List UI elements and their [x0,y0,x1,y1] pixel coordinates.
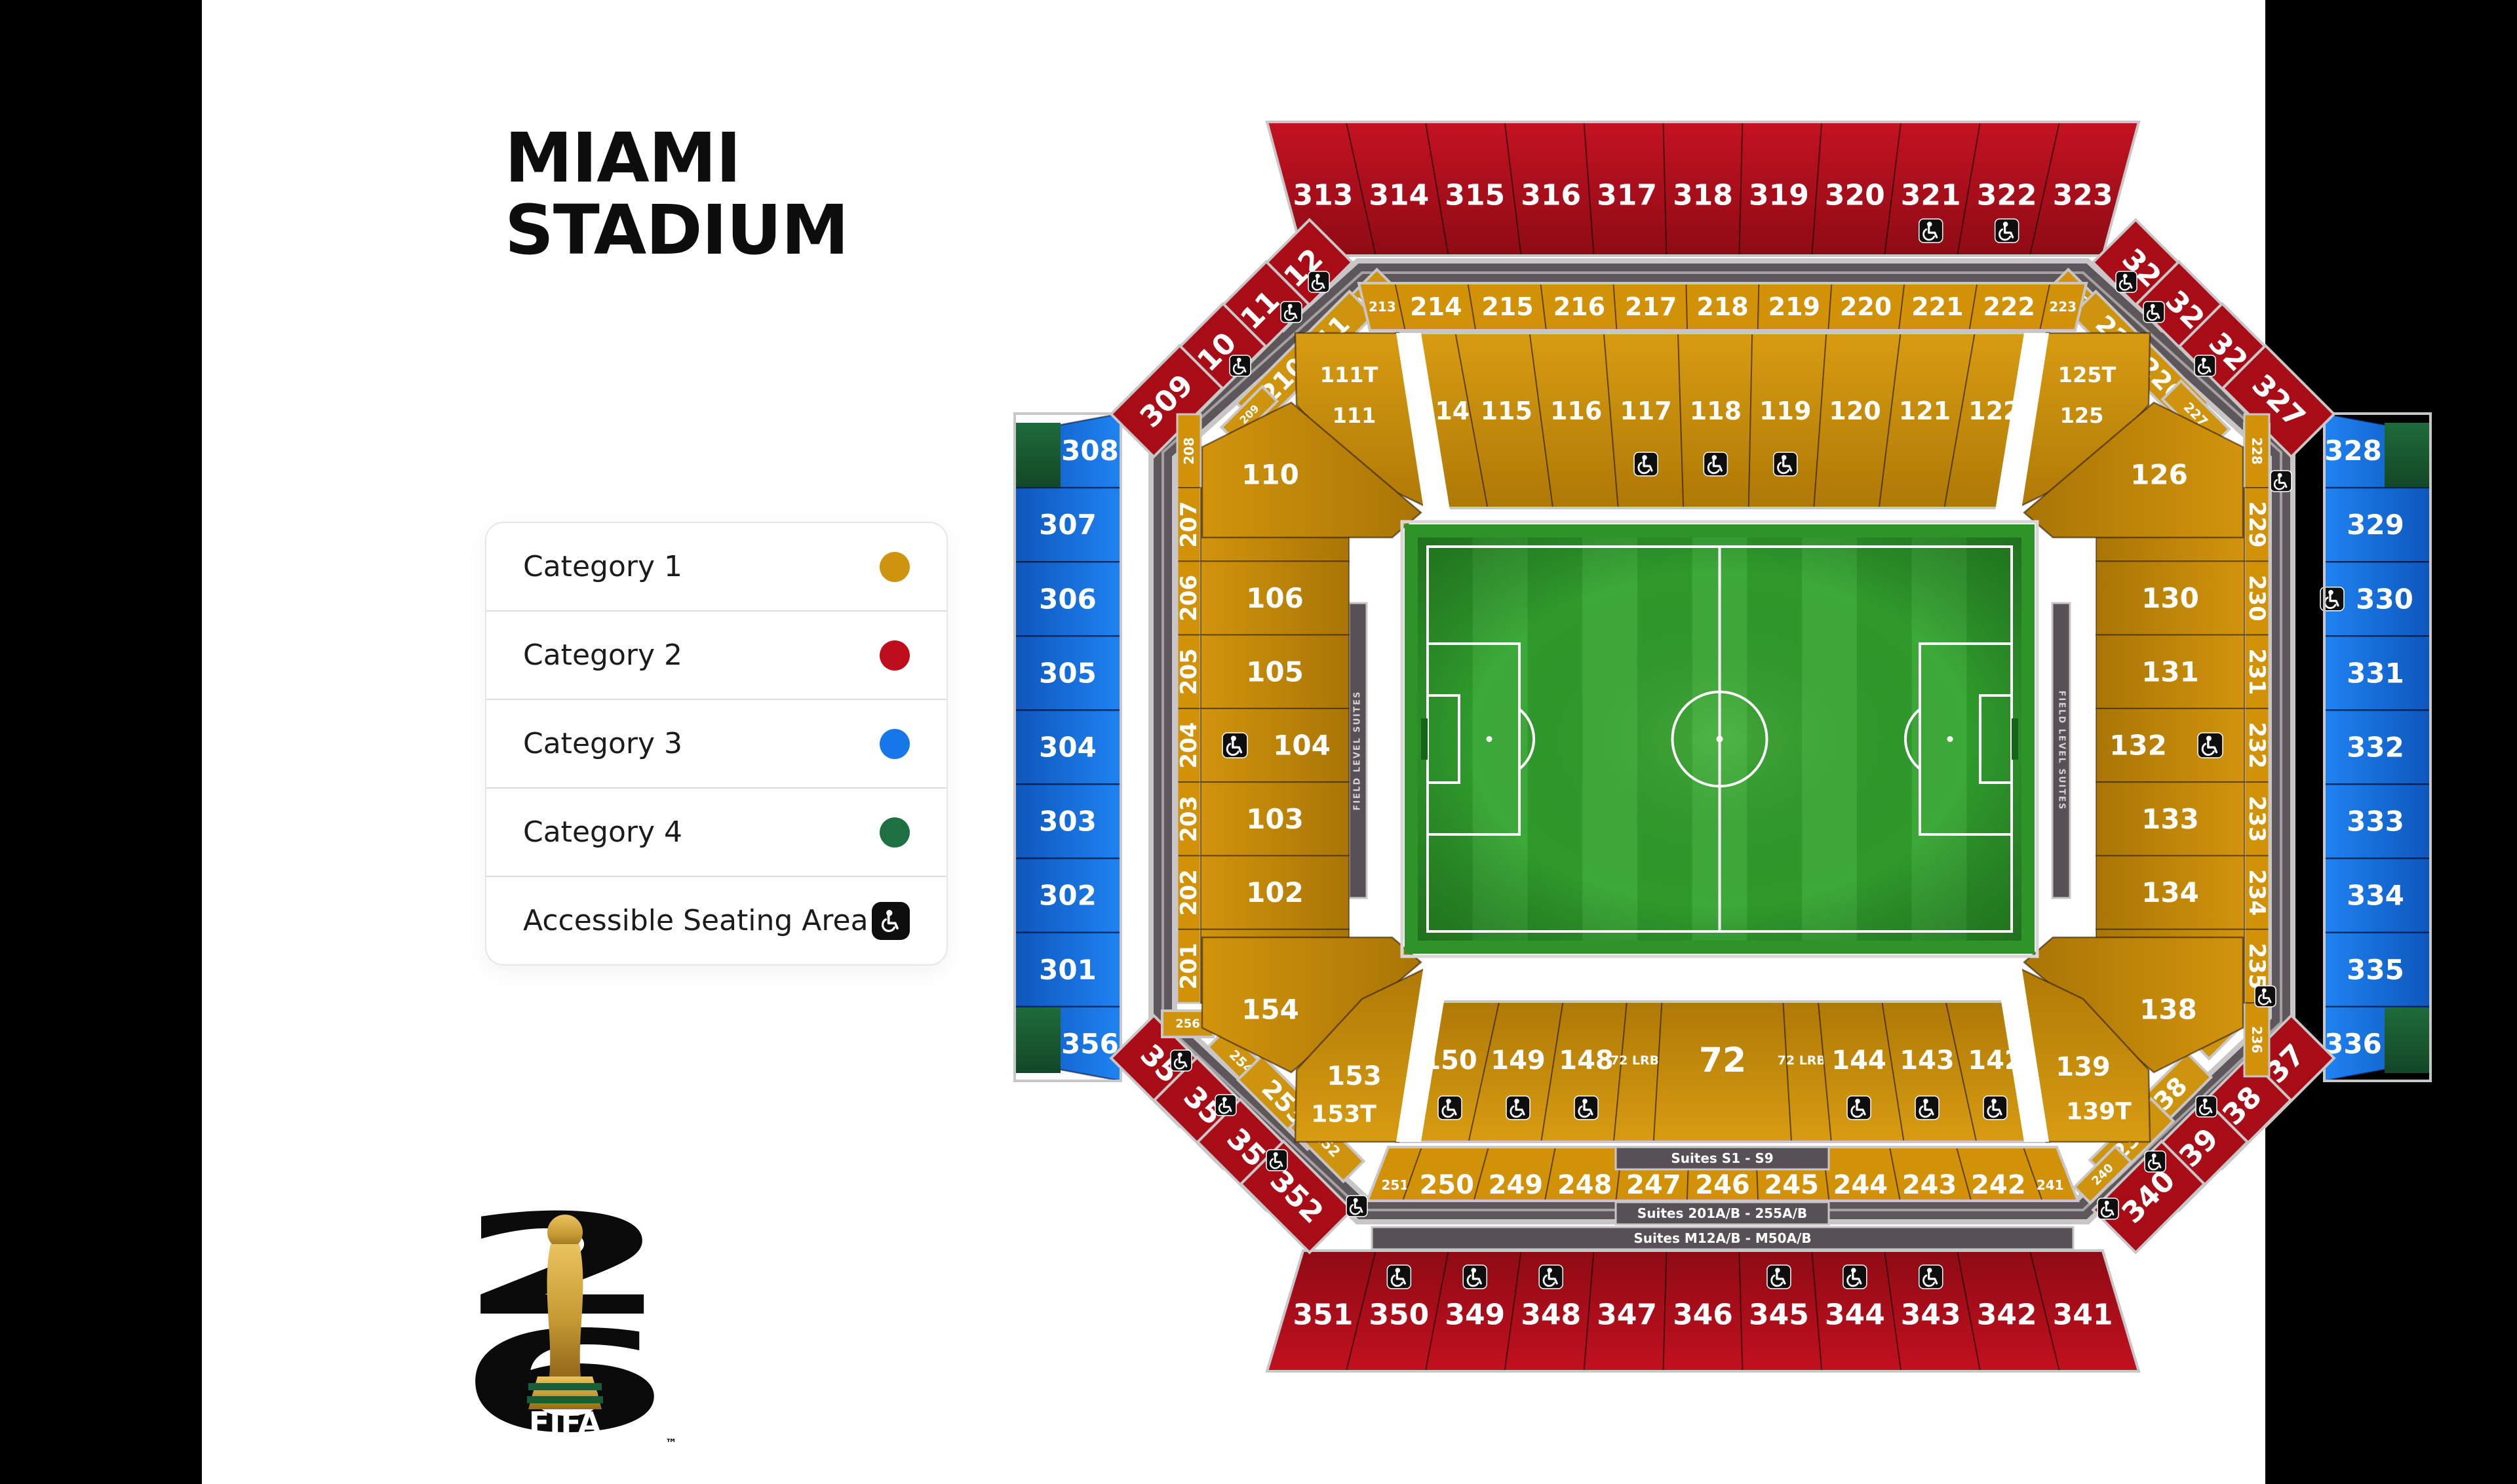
section-label: 118 [1690,397,1742,425]
section-label: 205 [1176,648,1202,695]
section-label: 331 [2347,657,2404,689]
section-label: 102 [1246,876,1304,908]
section-label: 301 [1039,954,1097,986]
accessible-icon [1463,1265,1487,1289]
section-203[interactable]: 203 [1176,782,1202,855]
section-label: 121 [1899,397,1951,425]
strip-right-200: 228229230231232233234235236 [2244,414,2270,1076]
section-label: 213 [1369,299,1396,315]
section-label: 231 [2244,648,2270,695]
screenshot-canvas: MIAMI STADIUM Category 1Category 2Catego… [0,0,2517,1484]
suite-bar-left: FIELD LEVEL SUITES [1349,603,1367,898]
section-label: 229 [2244,501,2270,548]
section-302[interactable]: 302 [1015,859,1121,933]
section-label: 131 [2141,655,2199,688]
section-label: 345 [1749,1298,1809,1332]
section-348[interactable]: 348 [1505,1251,1594,1371]
section-label: 346 [1673,1298,1733,1332]
accessible-icon [1506,1096,1530,1120]
section-label: 104 [1273,730,1331,762]
section-label: 207 [1176,501,1202,548]
section-label: 318 [1673,179,1733,212]
section-label: 139T [2066,1099,2132,1125]
accessible-icon [872,902,910,940]
accessible-icon [1634,452,1658,476]
section-label: 149 [1491,1045,1546,1076]
section-133[interactable]: 133 [2096,782,2244,855]
accessible-icon [1843,1265,1867,1289]
accessible-icon [2097,1198,2118,1219]
section-label: 244 [1833,1170,1888,1200]
section-104[interactable]: 104 [1201,709,1349,782]
section-335[interactable]: 335 [2324,933,2430,1007]
suites-201-255-bar: Suites 201A/B - 255A/B [1616,1202,1829,1224]
section-label: 215 [1481,292,1533,321]
accessible-icon [1215,1095,1236,1116]
section-label: 228 [2249,437,2265,465]
suite-bar-label: Suites M12A/B - M50A/B [1633,1230,1811,1246]
section-label: 321 [1901,179,1961,212]
section-label: 315 [1445,179,1505,212]
section-219[interactable]: 219 [1758,283,1832,330]
section-label: 144 [1831,1045,1886,1076]
section-label: 222 [1983,292,2035,321]
section-208[interactable]: 208 [1177,414,1201,488]
section-201[interactable]: 201 [1176,929,1202,1003]
section-232[interactable]: 232 [2244,709,2270,782]
section-label: 306 [1039,583,1097,615]
outer-top-band: 313314315316317318319320321322323 [1267,122,2139,256]
inner-bottom-row: 15014914872 LRB27272 LRB1144143142 [1396,1002,2049,1142]
page-background: MIAMI STADIUM Category 1Category 2Catego… [202,0,2265,1484]
accessible-icon [2116,271,2137,292]
suites-s1-s9-bar: Suites S1 - S9 [1616,1147,1829,1169]
section-label: 72 [1699,1041,1746,1080]
accessible-icon [2196,1096,2217,1117]
green-cap-356 [1015,1008,1061,1073]
accessible-icon [2198,733,2223,758]
section-218[interactable]: 218 [1687,283,1759,330]
band-top-200: 213214215216217218219220221222223 [1359,283,2086,330]
section-102[interactable]: 102 [1201,856,1349,929]
section-346[interactable]: 346 [1664,1251,1743,1371]
section-301[interactable]: 301 [1015,933,1121,1007]
section-label: 317 [1597,179,1657,212]
section-label: 130 [2141,582,2199,614]
section-106[interactable]: 106 [1201,561,1349,635]
section-label: 234 [2244,869,2270,916]
accessible-icon [1281,302,1302,322]
section-336[interactable]: 336 [2324,1007,2430,1081]
section-label: 126 [2130,459,2188,491]
section-206[interactable]: 206 [1176,561,1202,635]
suite-bar-label: FIELD LEVEL SUITES [1353,691,1363,811]
section-229[interactable]: 229 [2244,488,2270,561]
section-label: 116 [1550,397,1602,425]
section-207[interactable]: 207 [1176,488,1202,561]
outer-right-column: 328329330331332333334335336 [2320,414,2430,1081]
page-title-line1: MIAMI [505,122,848,194]
section-215[interactable]: 215 [1468,283,1547,330]
section-label: 203 [1176,796,1202,842]
section-label: 153 [1327,1061,1382,1091]
section-label: 232 [2244,722,2270,769]
section-label: 106 [1246,582,1304,614]
section-label: 343 [1901,1298,1961,1332]
section-label: 138 [2139,994,2197,1026]
section-249[interactable]: 249 [1474,1147,1555,1201]
section-318[interactable]: 318 [1664,122,1743,256]
section-222[interactable]: 222 [1970,283,2050,330]
section-132[interactable]: 132 [2096,709,2244,782]
section-306[interactable]: 306 [1015,562,1121,636]
section-131[interactable]: 131 [2096,635,2244,709]
section-305[interactable]: 305 [1015,636,1121,710]
suite-bar-label: Suites 201A/B - 255A/B [1637,1205,1807,1221]
section-202[interactable]: 202 [1176,856,1202,929]
section-label: 120 [1829,397,1881,425]
section-label: 125 [2060,403,2104,428]
section-label: 111T [1320,362,1378,387]
section-label: 154 [1241,994,1299,1026]
section-label: 323 [2053,179,2113,212]
section-231[interactable]: 231 [2244,635,2270,709]
section-label: 319 [1749,179,1809,212]
section-label: 223 [2049,299,2077,315]
section-label: 305 [1039,657,1097,689]
section-label: 217 [1625,292,1677,321]
accessible-icon [1266,1150,1287,1171]
accessible-icon [2145,1151,2166,1172]
accessible-icon [1704,452,1727,476]
section-228[interactable]: 228 [2244,414,2269,488]
section-label: 302 [1039,880,1097,912]
accessible-icon [2143,302,2164,322]
section-label: 143 [1900,1045,1955,1076]
inner-right-column: 129130131132133134135 [2096,488,2244,1003]
section-label: 103 [1246,803,1304,835]
section-label: 220 [1840,292,1892,321]
section-label: 347 [1597,1298,1657,1332]
section-label: 134 [2141,876,2199,908]
section-119[interactable]: 119 [1749,333,1827,508]
accessible-icon [2195,355,2215,376]
section-label: 351 [1293,1298,1354,1332]
section-328[interactable]: 328 [2324,414,2430,488]
section-label: 334 [2347,880,2404,912]
section-label: 333 [2347,806,2404,838]
section-label: 336 [2324,1028,2382,1060]
section-label: 221 [1911,292,1963,321]
section-label: 322 [1977,179,2037,212]
section-234[interactable]: 234 [2244,856,2270,929]
section-label: 139 [2056,1052,2111,1082]
page-title-line2: STADIUM [505,194,848,266]
section-216[interactable]: 216 [1541,283,1617,330]
green-cap-336 [2385,1008,2430,1073]
section-label: 201 [1176,943,1202,989]
section-label: 218 [1696,292,1748,321]
section-220[interactable]: 220 [1828,283,1904,330]
outer-bottom-band: 351350349348347346345344343342341 [1267,1251,2139,1371]
section-label: 204 [1176,722,1202,769]
legend-item-category-1: Category 1 [486,523,946,612]
legend-color-dot-cat2 [880,640,910,671]
section-label: 330 [2356,583,2413,615]
legend-item-label: Category 3 [523,727,682,760]
green-cap-308 [1015,423,1061,488]
section-label: 245 [1764,1170,1819,1200]
section-label: 208 [1181,437,1197,465]
section-label: 247 [1626,1170,1681,1200]
section-label: 356 [1061,1028,1119,1060]
accessible-icon [2255,986,2276,1007]
section-label: 316 [1521,179,1581,212]
stadium-seat-map: FIELD LEVEL SUITESFIELD LEVEL SUITES3133… [995,85,2450,1390]
legend-item-category-3: Category 3 [486,700,946,789]
section-label: 348 [1521,1298,1581,1332]
section-label: 105 [1246,655,1304,688]
section-329[interactable]: 329 [2324,488,2430,562]
accessible-icon [1995,219,2019,243]
section-label: 233 [2244,796,2270,842]
suite-bar-label: Suites S1 - S9 [1671,1150,1773,1166]
suites-m12-m50-bar: Suites M12A/B - M50A/B [1372,1227,2073,1249]
section-label: 248 [1557,1170,1612,1200]
section-221[interactable]: 221 [1899,283,1978,330]
section-label: 320 [1825,179,1885,212]
section-319[interactable]: 319 [1739,122,1822,256]
legend-item-label: Accessible Seating Area [523,904,868,937]
accessible-icon [1308,271,1329,292]
section-236[interactable]: 236 [2244,1003,2269,1076]
accessible-icon [1983,1096,2007,1120]
section-label: 344 [1825,1298,1885,1332]
section-214[interactable]: 214 [1395,283,1476,330]
section-label: 308 [1061,435,1119,467]
section-103[interactable]: 103 [1201,782,1349,855]
fifa-world-cup-26-logo: 2 6 FIFA ™ [452,1210,679,1454]
soccer-field [1402,522,2037,956]
section-244[interactable]: 244 [1823,1147,1900,1201]
section-233[interactable]: 233 [2244,782,2270,855]
legend-item-category-4: Category 4 [486,789,946,877]
section-333[interactable]: 333 [2324,785,2430,859]
section-label: 349 [1445,1298,1505,1332]
section-label: 332 [2347,732,2404,764]
legend-item-accessible-seating-area: Accessible Seating Area [486,877,946,964]
accessible-icon [1346,1196,1367,1217]
section-label: 307 [1039,509,1097,541]
section-118[interactable]: 118 [1678,333,1752,508]
section-356[interactable]: 356 [1015,1007,1121,1081]
section-117[interactable]: 117 [1604,333,1683,508]
section-304[interactable]: 304 [1015,710,1121,784]
accessible-icon [1230,355,1251,376]
green-cap-328 [2385,423,2430,488]
suite-bar-right: FIELD LEVEL SUITES [2052,603,2070,898]
section-label: 153T [1311,1101,1376,1128]
suite-bar-label: FIELD LEVEL SUITES [2057,691,2067,811]
category-legend: Category 1Category 2Category 3Category 4… [485,522,948,966]
section-204[interactable]: 204 [1176,709,1202,782]
section-label: 328 [2324,435,2382,467]
section-label: 341 [2053,1298,2113,1332]
section-217[interactable]: 217 [1614,283,1688,330]
section-130[interactable]: 130 [2096,561,2244,635]
accessible-icon [1222,733,1247,758]
section-label: 304 [1039,732,1097,764]
section-205[interactable]: 205 [1176,635,1202,709]
section-330[interactable]: 330 [2320,562,2430,636]
section-72[interactable]: 72 [1654,1002,1791,1142]
section-label: 230 [2244,575,2270,621]
section-label: 236 [2249,1026,2265,1053]
accessible-icon [1171,1050,1192,1071]
section-label: 342 [1977,1298,2037,1332]
legend-color-dot-cat1 [880,552,910,582]
section-label: 206 [1176,575,1202,621]
section-317[interactable]: 317 [1584,122,1667,256]
section-label: 132 [2109,730,2167,762]
section-label: 235 [2244,943,2270,989]
accessible-icon [2271,471,2292,492]
accessible-icon [1915,1096,1939,1120]
accessible-icon [1387,1265,1411,1289]
legend-item-category-2: Category 2 [486,612,946,700]
section-label: 216 [1553,292,1605,321]
section-label: 202 [1176,869,1202,916]
section-label: 110 [1241,459,1299,491]
accessible-icon [1919,219,1943,243]
accessible-icon [1438,1096,1462,1120]
section-label: 256 [1175,1017,1200,1031]
section-230[interactable]: 230 [2244,561,2270,635]
accessible-icon [1539,1265,1563,1289]
section-334[interactable]: 334 [2324,859,2430,933]
section-label: 111 [1333,403,1376,428]
section-332[interactable]: 332 [2324,710,2430,784]
section-label: 313 [1293,179,1354,212]
page-title: MIAMI STADIUM [505,122,848,266]
section-label: 241 [2037,1177,2064,1193]
section-label: 246 [1695,1170,1750,1200]
section-label: 249 [1489,1170,1544,1200]
section-label: 335 [2347,954,2404,986]
legend-color-dot-cat3 [880,729,910,759]
accessible-icon [1847,1096,1871,1120]
section-label: 350 [1369,1298,1429,1332]
outer-left-column: 308307306305304303302301356 [1015,414,1121,1081]
section-label: 148 [1559,1045,1614,1076]
legend-item-label: Category 4 [523,815,682,849]
section-label: 251 [1381,1177,1409,1193]
section-347[interactable]: 347 [1584,1251,1667,1371]
section-303[interactable]: 303 [1015,785,1121,859]
section-316[interactable]: 316 [1505,122,1594,256]
section-307[interactable]: 307 [1015,488,1121,562]
accessible-icon [1919,1265,1943,1289]
section-label: 119 [1759,397,1811,425]
inner-top-row: 114115116117118119120121122 [1396,333,2049,508]
accessible-icon [1767,1265,1791,1289]
inner-left-column: 107106105104103102101 [1201,488,1349,1003]
section-label: 125T [2058,362,2117,387]
logo-fifa-wordmark: FIFA [529,1405,602,1441]
section-345[interactable]: 345 [1739,1251,1822,1371]
section-label: 329 [2347,509,2404,541]
legend-color-dot-cat4 [880,817,910,848]
legend-item-label: Category 2 [523,638,682,672]
section-label: 250 [1419,1170,1474,1200]
section-label: 214 [1410,292,1462,321]
accessible-icon [1574,1096,1598,1120]
section-label: 314 [1369,179,1429,212]
section-label: 303 [1039,806,1097,838]
section-label: 117 [1620,397,1671,425]
section-label: 115 [1481,397,1532,425]
section-label: 243 [1902,1170,1957,1200]
section-label: 133 [2141,803,2199,835]
accessible-icon [1774,452,1797,476]
logo-tm: ™ [665,1437,677,1451]
section-248[interactable]: 248 [1545,1147,1622,1201]
section-label: 242 [1971,1170,2026,1200]
section-308[interactable]: 308 [1015,414,1121,488]
strip-left-200: 208207206205204203202201 [1176,414,1202,1003]
section-331[interactable]: 331 [2324,636,2430,710]
section-label: 219 [1768,292,1820,321]
section-105[interactable]: 105 [1201,635,1349,709]
section-134[interactable]: 134 [2096,856,2244,929]
legend-item-label: Category 1 [523,550,682,583]
